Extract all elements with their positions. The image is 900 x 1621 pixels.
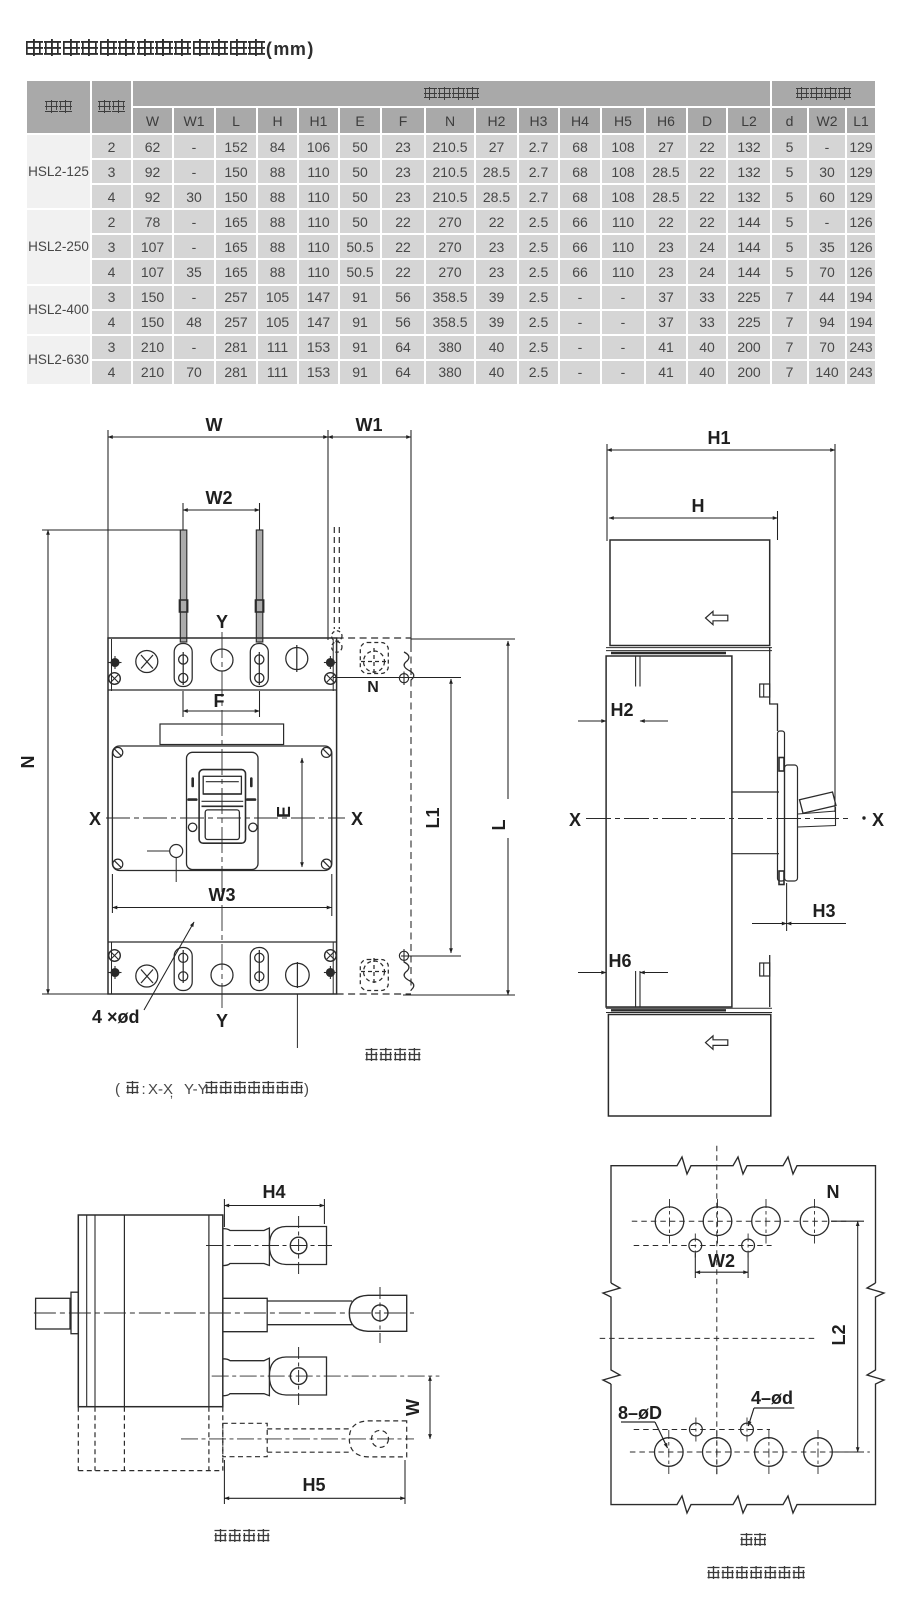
svg-text:W: W (206, 415, 223, 435)
svg-text:W1: W1 (356, 415, 383, 435)
svg-text:L2: L2 (829, 1324, 849, 1345)
svg-text:W: W (403, 1399, 423, 1416)
svg-text:F: F (214, 691, 225, 711)
svg-text:): ) (304, 1081, 309, 1098)
svg-text:H6: H6 (608, 951, 631, 971)
svg-text:W2: W2 (708, 1251, 735, 1271)
svg-text:N: N (18, 756, 38, 769)
svg-text:4–ød: 4–ød (751, 1388, 793, 1408)
svg-text:X: X (872, 810, 884, 830)
svg-text:H: H (692, 496, 705, 516)
svg-text:W3: W3 (209, 885, 236, 905)
svg-text:W2: W2 (206, 488, 233, 508)
svg-text:Y: Y (216, 1011, 228, 1031)
svg-text:X: X (89, 809, 101, 829)
svg-text:X: X (569, 810, 581, 830)
svg-text:N: N (367, 679, 379, 696)
svg-text:E: E (274, 806, 294, 818)
svg-text:H3: H3 (812, 901, 835, 921)
svg-text:H5: H5 (302, 1475, 325, 1495)
svg-text:L1: L1 (423, 807, 443, 828)
svg-text:H1: H1 (707, 428, 730, 448)
svg-text:Y: Y (216, 612, 228, 632)
svg-text:H2: H2 (610, 700, 633, 720)
svg-text:Y-Y: Y-Y (184, 1081, 208, 1098)
svg-text:(: ( (115, 1081, 120, 1098)
svg-text:‚: ‚ (170, 1085, 173, 1100)
svg-text:X: X (351, 809, 363, 829)
svg-text::: : (142, 1081, 146, 1098)
svg-text:H4: H4 (262, 1182, 285, 1202)
svg-text:8–øD: 8–øD (618, 1403, 662, 1423)
svg-text:L: L (489, 820, 509, 831)
svg-text:4 ×ød: 4 ×ød (92, 1007, 140, 1027)
svg-text:N: N (827, 1182, 840, 1202)
